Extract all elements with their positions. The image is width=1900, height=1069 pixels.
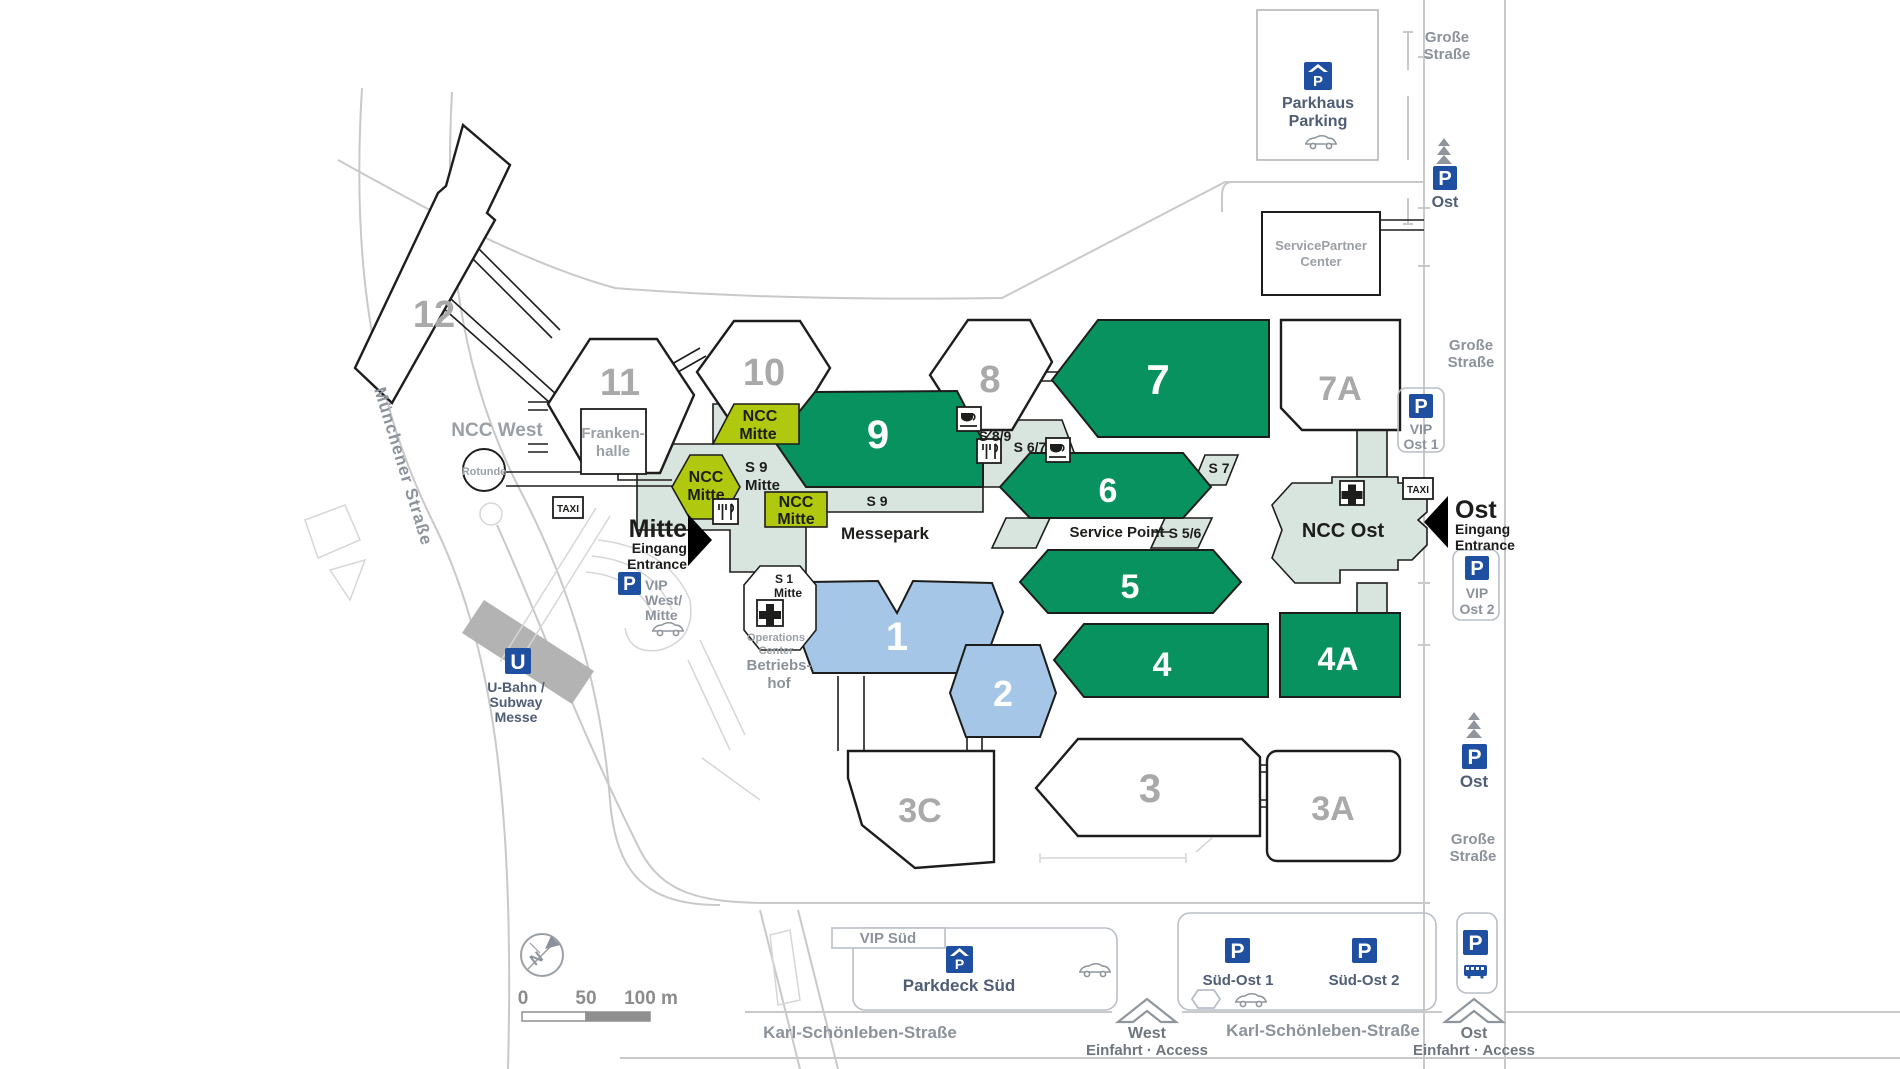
p-ost-top-label: Ost <box>1432 194 1459 211</box>
s89-label: S 8/9 <box>979 428 1012 444</box>
taxi-icon-west: TAXI <box>553 497 583 518</box>
bus-icon <box>1464 965 1487 979</box>
hall-12 <box>355 125 510 403</box>
vip-sued-label: VIP Süd <box>860 930 916 947</box>
west-access-name: West <box>1128 1025 1167 1042</box>
ost-access-name: Ost <box>1461 1025 1488 1042</box>
parkdeck-roof-icon: P <box>946 946 973 973</box>
karl-schoenleben-ost-label: Karl-Schönleben-Straße <box>1226 1021 1420 1040</box>
scale-hundred: 100 m <box>624 988 678 1009</box>
s7-label: S 7 <box>1208 460 1229 476</box>
u-bahn-icon: U <box>505 648 531 674</box>
west-access-arrow-icon <box>1118 999 1176 1022</box>
ncc-mitte-north-label-2: Mitte <box>739 426 776 443</box>
hall-3a-label: 3A <box>1311 790 1354 828</box>
hall-1-label: 1 <box>886 615 908 659</box>
hall-7a-label: 7A <box>1318 370 1361 408</box>
p-label: P <box>623 574 636 595</box>
parkdeck-sued-label: Parkdeck Süd <box>903 976 1015 995</box>
parkhaus-roof-icon: P <box>1304 62 1332 90</box>
hall-7-label: 7 <box>1146 356 1169 403</box>
s1-mitte-label-1: S 1 <box>775 572 793 586</box>
s9-label: S 9 <box>866 493 887 509</box>
hall-10-label: 10 <box>743 352 785 394</box>
first-aid-icon-operations <box>757 600 783 626</box>
road-tick-marks <box>1403 32 1430 903</box>
p-label: P <box>1470 558 1483 580</box>
taxi-label: TAXI <box>1407 485 1429 496</box>
betriebshof-label-1: Betriebs- <box>746 657 811 674</box>
grosse-strasse-mid-label-1: Große <box>1449 337 1493 354</box>
vip-ost1-label-2: Ost 1 <box>1403 436 1438 452</box>
vip-west-label-2: West/ <box>645 592 682 608</box>
karl-schoenleben-west-label: Karl-Schönleben-Straße <box>763 1023 957 1042</box>
u-label: U <box>510 651 525 674</box>
parking-p-ost-mid: P <box>1462 712 1487 769</box>
rotunde-label: Rotunde <box>462 466 507 478</box>
grosse-strasse-mid-label-2: Straße <box>1448 354 1495 371</box>
ost-entrance-sub2: Entrance <box>1455 537 1515 553</box>
mitte-entrance-name: Mitte <box>629 515 687 543</box>
ost-entrance-name: Ost <box>1455 496 1497 524</box>
mitte-entrance-sub1: Eingang <box>632 540 687 556</box>
muenchener-strasse-label: Münchener Straße <box>370 385 436 548</box>
s9-mitte-label-1: S 9 <box>745 459 768 476</box>
vip-ost2-label-1: VIP <box>1466 585 1489 601</box>
parkhaus-label-1: Parkhaus <box>1282 95 1354 112</box>
servicepartner-label-1: ServicePartner <box>1275 238 1367 253</box>
messepark-label: Messepark <box>841 524 929 543</box>
suedost-area: P P <box>1178 913 1436 1010</box>
first-aid-icon-ncc-ost <box>1340 481 1364 506</box>
parking-p-bus-strip: P <box>1457 913 1497 993</box>
parkhaus-p-label: P <box>1313 73 1323 90</box>
hall-3c-label: 3C <box>898 792 941 830</box>
mitte-entrance-sub2: Entrance <box>627 556 687 572</box>
ost-access-sub: Einfahrt · Access <box>1413 1042 1535 1059</box>
ost-entrance-sub1: Eingang <box>1455 521 1510 537</box>
coffee-icon-s67 <box>1046 438 1070 462</box>
operations-label-1: Operations <box>747 632 805 644</box>
suedost1-label: Süd-Ost 1 <box>1203 972 1274 989</box>
corridor-ncc-ost-south <box>1357 583 1387 613</box>
grosse-strasse-top-label-2: Straße <box>1424 46 1471 63</box>
hall-5-label: 5 <box>1121 568 1140 606</box>
betriebshof-label-2: hof <box>767 675 791 692</box>
parking-p-suedost1: P <box>1225 938 1250 963</box>
roundabout <box>480 503 502 525</box>
parking-p-vip-west: P <box>618 572 641 595</box>
s9-mitte-label-2: Mitte <box>745 477 780 494</box>
p-label: P <box>1230 940 1244 963</box>
compass-icon: N <box>521 934 563 976</box>
operations-label-2: Center <box>759 645 795 657</box>
vip-ost2-label-2: Ost 2 <box>1459 601 1494 617</box>
frankenhalle-label-1: Franken- <box>581 425 644 442</box>
scale-fifty: 50 <box>575 988 596 1009</box>
frankenhalle-label-2: halle <box>596 443 630 460</box>
parkdeck-p-label: P <box>955 956 964 972</box>
scale-bar: 0 50 100 m <box>518 988 678 1021</box>
p-label: P <box>1357 940 1371 963</box>
road-servicepartner-bend <box>1222 182 1232 212</box>
p-label: P <box>1414 396 1427 418</box>
ubahn-label-2: Subway <box>490 694 543 710</box>
parking-p-suedost2: P <box>1352 938 1377 963</box>
p-label: P <box>1467 746 1481 769</box>
ncc-mitte-west-label-1: NCC <box>689 469 724 486</box>
corridor-ncc-ost-north <box>1357 430 1387 477</box>
p-label: P <box>1468 932 1482 955</box>
coffee-icon-s89 <box>957 407 981 431</box>
vip-west-label-3: Mitte <box>645 607 678 623</box>
hall-3-label: 3 <box>1139 767 1161 811</box>
suedost2-label: Süd-Ost 2 <box>1329 972 1400 989</box>
ost-access-arrow-icon <box>1445 999 1503 1022</box>
corridor-hall6-west <box>992 518 1050 548</box>
p-ost-mid-label: Ost <box>1460 772 1489 791</box>
parkhaus-label-2: Parking <box>1289 113 1348 130</box>
parking-p-ost-top: P <box>1433 138 1457 190</box>
car-icon-vip-west <box>652 623 684 636</box>
hall-4a-label: 4A <box>1318 641 1359 677</box>
hall-12-label: 12 <box>413 294 455 336</box>
s56-label: S 5/6 <box>1169 525 1202 541</box>
s1-mitte-label-2: Mitte <box>774 586 802 600</box>
ncc-mitte-east-label-1: NCC <box>779 494 814 511</box>
car-icon-parkdeck <box>1079 964 1111 977</box>
ncc-west-label: NCC West <box>451 420 543 441</box>
tree-icon <box>1466 712 1482 738</box>
hall-11-label: 11 <box>600 362 640 404</box>
road-karl-schoenleben <box>620 910 1900 1069</box>
scale-zero: 0 <box>518 988 529 1009</box>
ubahn-label-1: U-Bahn / <box>487 679 545 695</box>
ncc-mitte-north-label-1: NCC <box>743 408 778 425</box>
p-label: P <box>1438 168 1451 190</box>
servicepartner-label-2: Center <box>1300 254 1341 269</box>
venue-map: P P P P P P P <box>0 0 1900 1069</box>
ncc-ost-label: NCC Ost <box>1302 520 1385 542</box>
hall-9-label: 9 <box>867 413 889 457</box>
car-icon-suedost <box>1235 994 1267 1007</box>
planter-hexagon <box>1192 990 1220 1008</box>
ncc-mitte-east-label-2: Mitte <box>777 511 814 528</box>
ubahn-label-3: Messe <box>495 709 538 725</box>
tree-icon <box>1436 138 1452 164</box>
grosse-strasse-bottom-label-1: Große <box>1451 831 1495 848</box>
taxi-icon-ost: TAXI <box>1403 478 1433 499</box>
taxi-label: TAXI <box>557 504 579 515</box>
grosse-strasse-bottom-label-2: Straße <box>1450 848 1497 865</box>
hall-2-label: 2 <box>993 673 1013 714</box>
ncc-mitte-west-label-2: Mitte <box>687 487 724 504</box>
vip-west-label-1: VIP <box>645 577 668 593</box>
vip-ost1-label-1: VIP <box>1410 421 1433 437</box>
service-point-label: Service Point <box>1069 524 1164 541</box>
grosse-strasse-top-label-1: Große <box>1425 29 1469 46</box>
s67-label: S 6/7 <box>1014 439 1047 455</box>
hall-6-label: 6 <box>1099 472 1118 510</box>
west-access-sub: Einfahrt · Access <box>1086 1042 1208 1059</box>
hall-4-label: 4 <box>1153 646 1172 684</box>
hall-8-label: 8 <box>979 359 1000 401</box>
